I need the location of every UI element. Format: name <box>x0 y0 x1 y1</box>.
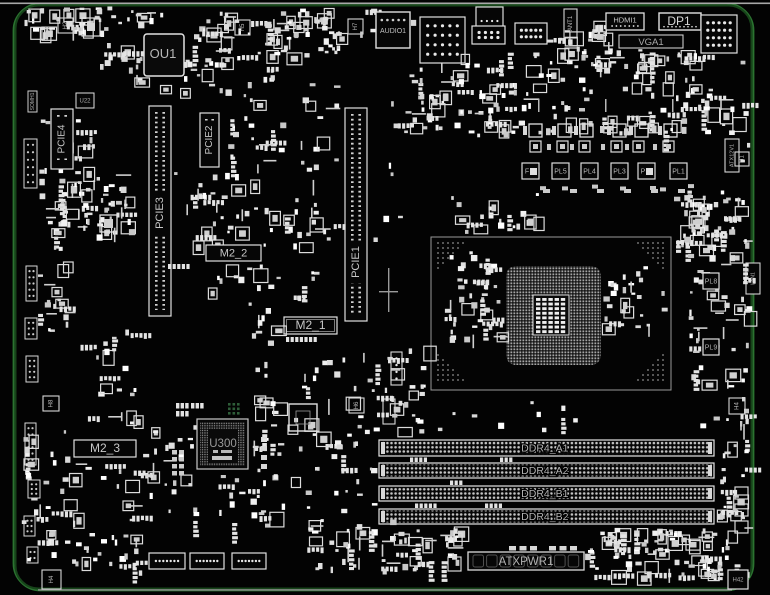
svg-text:DDR4_A2: DDR4_A2 <box>521 465 568 477</box>
svg-text:H8: H8 <box>49 399 55 407</box>
svg-text:U22: U22 <box>79 99 91 105</box>
svg-text:PCIE3: PCIE3 <box>154 197 166 229</box>
svg-text:H4: H4 <box>49 575 55 583</box>
svg-text:H7: H7 <box>353 22 359 30</box>
svg-text:H6: H6 <box>354 401 360 409</box>
svg-text:M2_2: M2_2 <box>220 247 248 259</box>
svg-text:AUDIO1: AUDIO1 <box>380 28 406 35</box>
svg-text:PL5: PL5 <box>554 169 567 176</box>
svg-text:H5: H5 <box>240 23 246 31</box>
svg-text:SOMH1: SOMH1 <box>30 92 36 110</box>
svg-text:OU1: OU1 <box>150 46 177 61</box>
svg-text:DDR4_B1: DDR4_B1 <box>521 488 568 500</box>
svg-text:HDMI1: HDMI1 <box>613 16 636 25</box>
svg-text:PL1: PL1 <box>672 169 685 176</box>
svg-text:PCIE2: PCIE2 <box>204 125 215 154</box>
svg-text:F: F <box>525 169 529 176</box>
svg-text:ANT1: ANT1 <box>568 15 574 31</box>
svg-text:PCIE1: PCIE1 <box>350 246 362 278</box>
svg-text:DP1: DP1 <box>667 14 691 28</box>
svg-text:M2_1: M2_1 <box>295 318 325 332</box>
svg-text:P: P <box>641 169 646 176</box>
svg-text:H42: H42 <box>732 578 744 584</box>
svg-text:DDR4_A1: DDR4_A1 <box>521 442 568 454</box>
svg-text:U300: U300 <box>209 438 237 450</box>
svg-text:ATXPWR1: ATXPWR1 <box>499 556 554 568</box>
svg-text:VGA1: VGA1 <box>638 37 663 48</box>
svg-text:PL4: PL4 <box>583 169 596 176</box>
svg-text:M2_3: M2_3 <box>90 441 120 455</box>
svg-text:H4: H4 <box>735 402 741 410</box>
svg-text:PL9: PL9 <box>705 344 718 351</box>
svg-text:PL3: PL3 <box>613 169 626 176</box>
svg-text:PL8: PL8 <box>705 278 718 285</box>
svg-text:H2: H2 <box>63 21 69 29</box>
svg-text:DDR4_B2: DDR4_B2 <box>521 511 568 523</box>
svg-text:PCIE4: PCIE4 <box>57 124 68 153</box>
